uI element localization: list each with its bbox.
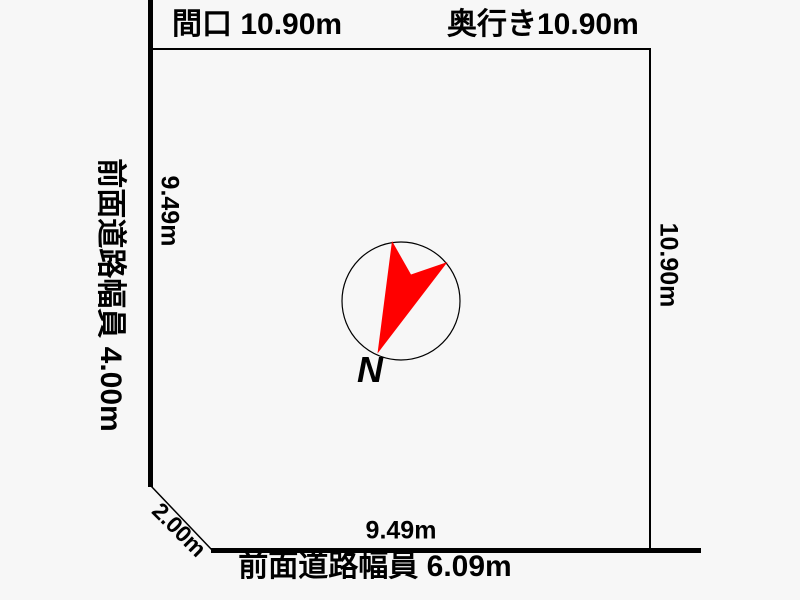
north-arrow-icon xyxy=(378,241,448,354)
left-dimension-label: 9.49m xyxy=(157,176,182,247)
frontage-label: 間口 10.90m xyxy=(172,10,342,40)
right-dimension-label: 10.90m xyxy=(656,223,681,308)
left-road-width-label: 前面道路幅員 4.00m xyxy=(95,158,125,431)
bottom-dimension-label: 9.49m xyxy=(366,519,437,544)
compass-north-label: N xyxy=(357,352,383,388)
depth-label: 奥行き10.90m xyxy=(447,10,639,40)
bottom-road-width-label: 前面道路幅員 6.09m xyxy=(238,552,511,582)
plot-diagram: 間口 10.90m 奥行き10.90m 前面道路幅員 4.00m 9.49m 1… xyxy=(0,0,800,600)
